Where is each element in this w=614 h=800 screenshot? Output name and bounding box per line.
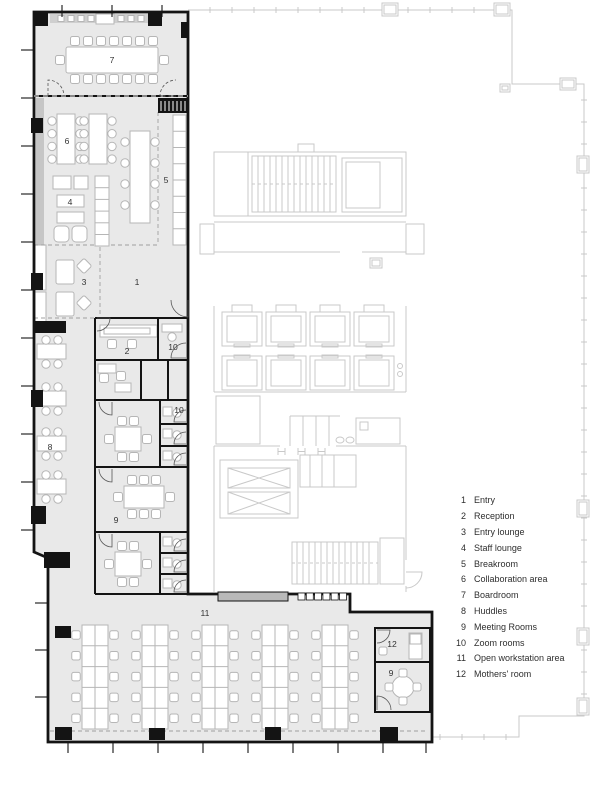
room-label: 1 (135, 277, 140, 287)
legend-item: 6Collaboration area (450, 572, 565, 588)
legend-item-label: Entry lounge (474, 528, 525, 537)
room-label: 10 (168, 342, 178, 352)
legend-item-label: Collaboration area (474, 575, 548, 584)
legend-item: 8Huddles (450, 604, 565, 620)
legend-item-label: Breakroom (474, 560, 518, 569)
room-label: 11 (201, 608, 210, 618)
legend-item-number: 12 (450, 670, 466, 679)
legend-item-number: 9 (450, 623, 466, 632)
legend-item-number: 4 (450, 544, 466, 553)
legend-item: 10Zoom rooms (450, 635, 565, 651)
legend-item-label: Open workstation area (474, 654, 565, 663)
room-label: 2 (125, 346, 130, 356)
room-label: 9 (114, 515, 119, 525)
floor-plan-page: 765431210108911129 1Entry2Reception3Entr… (0, 0, 614, 800)
room-label: 5 (164, 175, 169, 185)
room-label: 10 (174, 405, 184, 415)
legend-item: 11Open workstation area (450, 651, 565, 667)
legend-item: 3Entry lounge (450, 525, 565, 541)
legend-item: 12Mothers' room (450, 667, 565, 683)
room-label: 4 (68, 197, 73, 207)
legend-item-number: 3 (450, 528, 466, 537)
legend-item-label: Zoom rooms (474, 639, 525, 648)
legend-item: 2Reception (450, 509, 565, 525)
legend-item-label: Boardroom (474, 591, 519, 600)
legend-item-number: 1 (450, 496, 466, 505)
room-label: 3 (82, 277, 87, 287)
legend-item-number: 11 (450, 654, 466, 663)
room-label: 8 (48, 442, 53, 452)
legend-item-number: 2 (450, 512, 466, 521)
legend-item-number: 8 (450, 607, 466, 616)
legend-item: 7Boardroom (450, 588, 565, 604)
room-label: 12 (387, 639, 397, 649)
room-label: 6 (65, 136, 70, 146)
legend-item-number: 10 (450, 639, 466, 648)
legend-item: 9Meeting Rooms (450, 619, 565, 635)
legend-item-number: 6 (450, 575, 466, 584)
legend-item: 5Breakroom (450, 556, 565, 572)
room-label: 9 (389, 668, 394, 678)
legend-item-label: Entry (474, 496, 495, 505)
legend-item-number: 5 (450, 560, 466, 569)
legend-item-label: Meeting Rooms (474, 623, 537, 632)
legend-item-label: Mothers' room (474, 670, 531, 679)
legend-item: 4Staff lounge (450, 540, 565, 556)
legend-item: 1Entry (450, 493, 565, 509)
legend-item-label: Huddles (474, 607, 507, 616)
room-label: 7 (110, 55, 115, 65)
legend-item-label: Reception (474, 512, 515, 521)
legend-item-number: 7 (450, 591, 466, 600)
legend-item-label: Staff lounge (474, 544, 522, 553)
legend: 1Entry2Reception3Entry lounge4Staff loun… (450, 493, 565, 683)
